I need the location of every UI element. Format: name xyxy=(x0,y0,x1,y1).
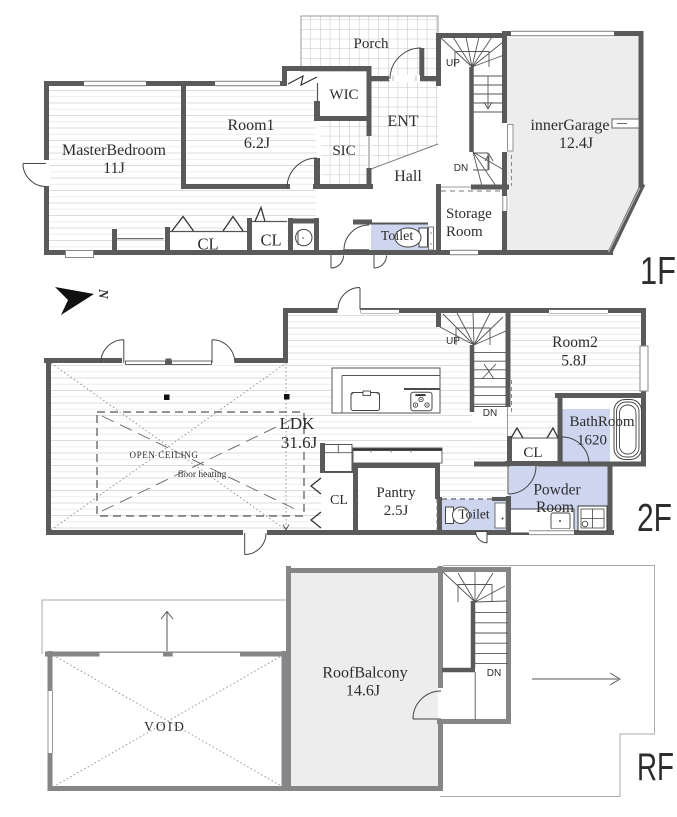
svg-text:1620: 1620 xyxy=(577,433,607,449)
svg-text:Room: Room xyxy=(536,499,574,516)
svg-text:RF: RF xyxy=(637,746,674,789)
svg-text:UP: UP xyxy=(446,58,460,69)
svg-text:DN: DN xyxy=(454,163,468,174)
svg-text:LDK: LDK xyxy=(280,414,316,433)
svg-text:CL: CL xyxy=(523,445,542,461)
svg-text:Powder: Powder xyxy=(533,482,581,499)
svg-text:floor heating: floor heating xyxy=(178,469,227,480)
svg-text:CL: CL xyxy=(330,493,348,508)
svg-text:CL: CL xyxy=(260,231,281,250)
svg-text:Hall: Hall xyxy=(394,168,422,185)
svg-text:Toilet: Toilet xyxy=(381,229,414,244)
svg-text:MasterBedroom: MasterBedroom xyxy=(62,142,167,159)
svg-text:Storage: Storage xyxy=(446,206,492,222)
svg-text:Room2: Room2 xyxy=(552,334,598,351)
svg-text:RoofBalcony: RoofBalcony xyxy=(322,665,407,682)
svg-text:6.2J: 6.2J xyxy=(244,135,270,152)
svg-text:DN: DN xyxy=(487,668,501,679)
svg-text:1F: 1F xyxy=(640,250,676,293)
svg-text:31.6J: 31.6J xyxy=(281,433,318,452)
svg-text:CL: CL xyxy=(197,235,218,254)
svg-text:Room: Room xyxy=(446,224,483,240)
svg-text:Toilet: Toilet xyxy=(458,507,490,522)
svg-text:VOID: VOID xyxy=(144,719,186,734)
svg-text:UP: UP xyxy=(446,336,460,347)
svg-text:11J: 11J xyxy=(103,160,125,177)
svg-text:2.5J: 2.5J xyxy=(384,503,409,519)
svg-text:ENT: ENT xyxy=(387,113,418,130)
svg-text:14.6J: 14.6J xyxy=(346,683,380,700)
svg-text:WIC: WIC xyxy=(329,87,358,103)
svg-text:innerGarage: innerGarage xyxy=(530,117,609,134)
svg-text:OPEN CEILING: OPEN CEILING xyxy=(130,450,199,460)
svg-text:DN: DN xyxy=(483,408,497,419)
svg-text:5.8J: 5.8J xyxy=(561,353,586,370)
svg-text:Room1: Room1 xyxy=(227,117,274,134)
svg-text:12.4J: 12.4J xyxy=(559,135,593,152)
svg-text:Pantry: Pantry xyxy=(376,485,416,501)
svg-text:BathRoom: BathRoom xyxy=(569,414,634,430)
svg-text:SIC: SIC xyxy=(332,143,355,159)
svg-text:2F: 2F xyxy=(637,497,672,540)
svg-text:Porch: Porch xyxy=(354,36,389,52)
svg-text:N: N xyxy=(96,288,111,300)
